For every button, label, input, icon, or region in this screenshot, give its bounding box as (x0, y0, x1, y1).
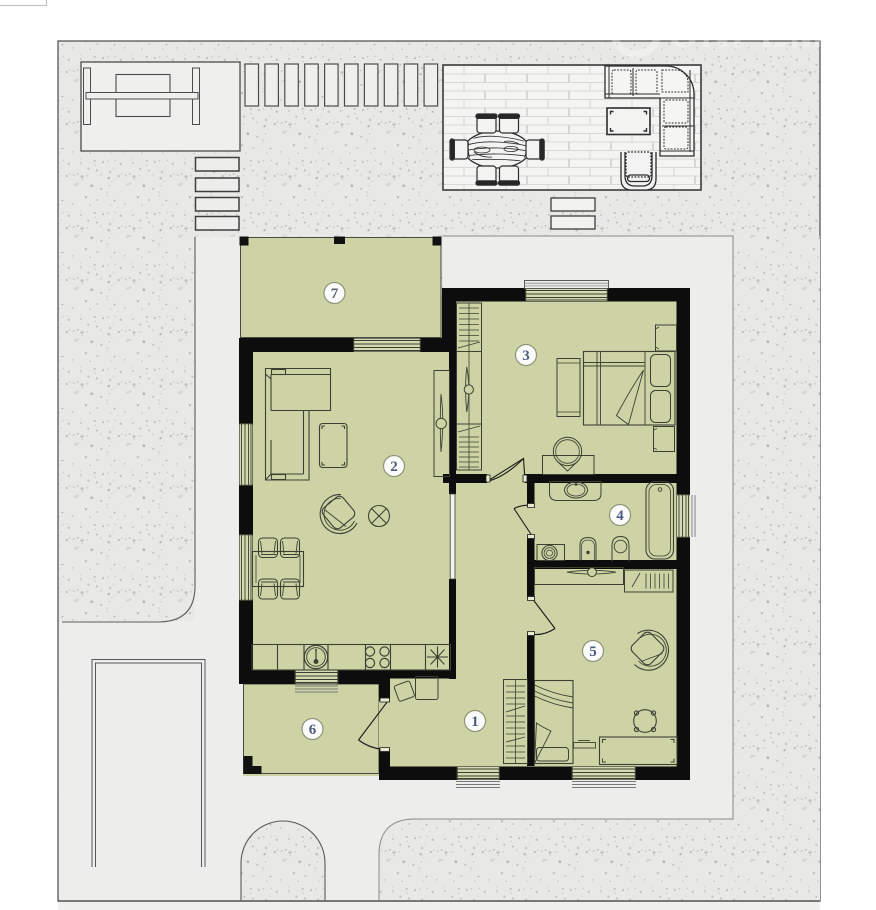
svg-text:2: 2 (390, 459, 398, 475)
svg-text:5: 5 (589, 644, 597, 660)
svg-text:6: 6 (309, 722, 317, 738)
svg-text:1: 1 (471, 714, 479, 730)
svg-text:7: 7 (331, 286, 339, 302)
svg-text:ONPEMT: ONPEMT (668, 12, 851, 56)
svg-text:3: 3 (522, 348, 530, 364)
svg-text:4: 4 (616, 508, 624, 524)
